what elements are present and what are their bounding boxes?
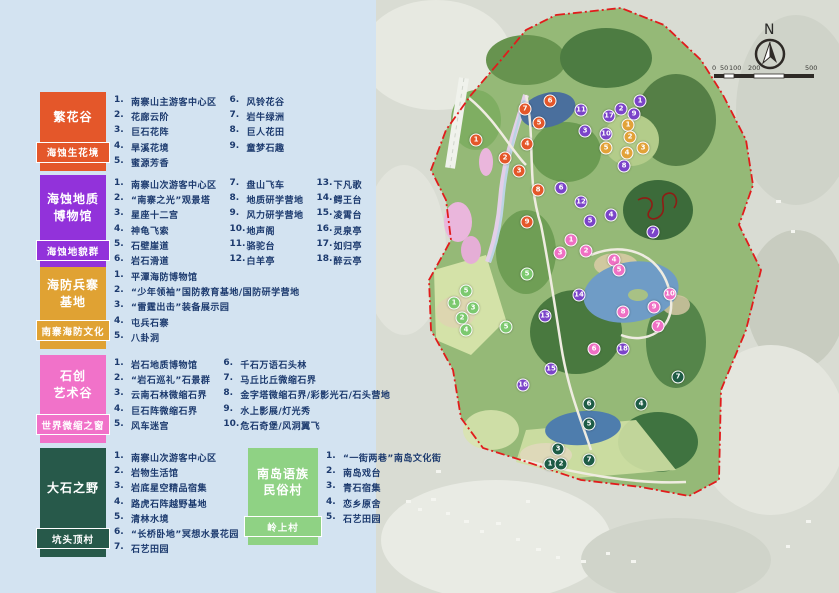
map-marker-stone-art-valley-1: 1 <box>565 234 578 247</box>
map-marker-geology-museum-3: 3 <box>579 125 592 138</box>
map-marker-folk-village-3: 3 <box>467 302 480 315</box>
legend-item: 1.岩石地质博物馆 <box>114 358 210 373</box>
map-marker-flower-valley-2: 2 <box>499 152 512 165</box>
legend-item: 16.灵泉亭 <box>317 224 363 239</box>
map-marker-stone-wilderness-3: 3 <box>552 443 565 456</box>
legend-item: 11.骆驼台 <box>230 239 304 254</box>
legend-item: 5.风车迷宫 <box>114 419 210 434</box>
legend-subtitle: 南寨海防文化 <box>36 320 110 341</box>
legend-item: 13.下凡歌 <box>317 178 363 193</box>
map-marker-geology-museum-10: 10 <box>600 128 613 141</box>
svg-text:0: 0 <box>712 64 716 72</box>
legend-item: 4.神龟飞索 <box>114 224 217 239</box>
map-marker-stone-wilderness-2: 2 <box>555 458 568 471</box>
map-marker-flower-valley-7: 7 <box>519 103 532 116</box>
map-marker-geology-museum-1: 1 <box>634 95 647 108</box>
map-marker-geology-museum-12: 12 <box>575 196 588 209</box>
map-marker-defense-base-2: 2 <box>624 131 637 144</box>
legend-item: 8.巨人花田 <box>230 125 285 140</box>
map-marker-defense-base-3: 3 <box>637 142 650 155</box>
legend-item: 7.石艺田园 <box>114 542 239 557</box>
legend-item: 2.花廊云阶 <box>114 110 217 125</box>
legend-title: 南岛语族 民俗村 <box>248 448 318 516</box>
map-marker-stone-art-valley-6: 6 <box>588 343 601 356</box>
legend-item: 6.“长桥卧地”冥想水景花园 <box>114 527 239 542</box>
legend-item: 2.“岩石巡礼”石景群 <box>114 373 210 388</box>
park-plan-poster: 繁花谷 海蚀生花境 1.南寨山主游客中心区2.花廊云阶3.巨石花阵4.旱溪花境5… <box>0 0 839 593</box>
svg-text:200: 200 <box>748 64 760 72</box>
legend-items: 1.平潭海防博物馆2.“少年领袖”国防教育基地/国防研学营地3.“雷霆出击”装备… <box>114 267 300 349</box>
legend-item: 2.岩物生活馆 <box>114 466 239 481</box>
legend-item: 3.青石宿集 <box>326 481 441 496</box>
svg-text:N: N <box>764 22 774 38</box>
map-marker-geology-museum-13: 13 <box>539 310 552 323</box>
legend-item: 4.路虎石阵越野基地 <box>114 497 239 512</box>
map-marker-folk-village-4: 4 <box>460 324 473 337</box>
legend-group-geology-museum: 海蚀地质 博物馆 海蚀地貌群 1.南寨山次游客中心区2.“南寨之光”观景塔3.星… <box>40 175 362 269</box>
legend-title: 石创 艺术谷 <box>40 355 106 414</box>
svg-text:500: 500 <box>805 64 817 72</box>
map-marker-geology-museum-6: 6 <box>555 182 568 195</box>
legend-item: 8.地质研学营地 <box>230 193 304 208</box>
map-marker-folk-village-5: 5 <box>521 268 534 281</box>
map-marker-flower-valley-6: 6 <box>544 95 557 108</box>
legend-item: 7.盘山飞车 <box>230 178 304 193</box>
legend-group-folk-village: 南岛语族 民俗村 岭上村 1.“一街两巷”南岛文化街2.南岛戏台3.青石宿集4.… <box>248 448 441 545</box>
map-marker-stone-art-valley-10: 10 <box>664 288 677 301</box>
legend-item: 6.千石万语石头林 <box>223 358 390 373</box>
map-marker-stone-wilderness-7: 7 <box>672 371 685 384</box>
legend-group-stone-art-valley: 石创 艺术谷 世界微缩之窗 1.岩石地质博物馆2.“岩石巡礼”石景群3.云南石林… <box>40 355 390 443</box>
map-marker-flower-valley-5: 5 <box>533 117 546 130</box>
legend-subtitle: 世界微缩之窗 <box>36 414 110 435</box>
map-marker-geology-museum-16: 16 <box>517 379 530 392</box>
map-marker-stone-art-valley-3: 3 <box>554 247 567 260</box>
legend-item: 3.巨石花阵 <box>114 125 217 140</box>
legend-color-box: 石创 艺术谷 世界微缩之窗 <box>40 355 106 443</box>
map-marker-geology-museum-7: 7 <box>647 226 660 239</box>
map-marker-flower-valley-3: 3 <box>513 165 526 178</box>
legend-item: 9.风力研学营地 <box>230 208 304 223</box>
legend-item: 4.恋乡原舍 <box>326 497 441 512</box>
legend-item: 15.凌霄台 <box>317 208 363 223</box>
map-marker-geology-museum-14: 14 <box>573 289 586 302</box>
legend-item: 5.八卦洞 <box>114 331 300 346</box>
legend-subtitle: 坑头顶村 <box>36 528 110 549</box>
legend-item: 2.南岛戏台 <box>326 466 441 481</box>
legend-color-box: 海蚀地质 博物馆 海蚀地貌群 <box>40 175 106 269</box>
legend-items: 1.南寨山次游客中心区2.“南寨之光”观景塔3.星座十二宫4.神龟飞索5.石壁崖… <box>114 175 362 269</box>
svg-text:100: 100 <box>729 64 741 72</box>
legend-items: 1.南寨山主游客中心区2.花廊云阶3.巨石花阵4.旱溪花境5.蜜源芳香6.风铃花… <box>114 92 285 171</box>
map-marker-folk-village-5: 5 <box>460 285 473 298</box>
legend-item: 5.石艺田园 <box>326 512 441 527</box>
map-marker-flower-valley-1: 1 <box>470 134 483 147</box>
legend-items: 1.“一街两巷”南岛文化街2.南岛戏台3.青石宿集4.恋乡原舍5.石艺田园 <box>326 448 441 545</box>
map-marker-geology-museum-18: 18 <box>617 343 630 356</box>
map-marker-stone-wilderness-7: 7 <box>583 454 596 467</box>
map-marker-stone-wilderness-4: 4 <box>635 398 648 411</box>
map-marker-folk-village-1: 1 <box>448 297 461 310</box>
legend-subtitle: 海蚀地貌群 <box>36 240 110 261</box>
map-marker-defense-base-4: 4 <box>621 147 634 160</box>
legend-color-box: 海防兵寨 基地 南寨海防文化 <box>40 267 106 349</box>
map-marker-geology-museum-8: 8 <box>618 160 631 173</box>
map-marker-geology-museum-4: 4 <box>605 209 618 222</box>
legend-item: 17.如归亭 <box>317 239 363 254</box>
legend-item: 2.“少年领袖”国防教育基地/国防研学营地 <box>114 285 300 300</box>
map-marker-flower-valley-4: 4 <box>521 138 534 151</box>
legend-subtitle: 岭上村 <box>244 516 322 537</box>
legend-items: 1.岩石地质博物馆2.“岩石巡礼”石景群3.云南石林微缩石界4.巨石阵微缩石界5… <box>114 355 390 443</box>
map-marker-flower-valley-8: 8 <box>532 184 545 197</box>
legend-items: 1.南寨山次游客中心区2.岩物生活馆3.岩底星空精品宿集4.路虎石阵越野基地5.… <box>114 448 239 557</box>
legend-item: 7.岩牛绿洲 <box>230 110 285 125</box>
legend-item: 14.鳄王台 <box>317 193 363 208</box>
legend-subtitle: 海蚀生花境 <box>36 142 110 163</box>
legend-color-box: 大石之野 坑头顶村 <box>40 448 106 557</box>
map-illustration: N 0 50 100 200 500 <box>376 0 839 593</box>
park-map: N 0 50 100 200 500 123456789123456789101… <box>376 0 839 593</box>
legend-title: 繁花谷 <box>40 92 106 142</box>
legend-color-box: 繁花谷 海蚀生花境 <box>40 92 106 171</box>
legend-item: 3.“雷霆出击”装备展示园 <box>114 300 300 315</box>
legend-item: 1.“一街两巷”南岛文化街 <box>326 451 441 466</box>
legend-group-defense-base: 海防兵寨 基地 南寨海防文化 1.平潭海防博物馆2.“少年领袖”国防教育基地/国… <box>40 267 300 349</box>
map-marker-geology-museum-2: 2 <box>615 103 628 116</box>
map-marker-folk-village-5: 5 <box>500 321 513 334</box>
legend-group-stone-wilderness: 大石之野 坑头顶村 1.南寨山次游客中心区2.岩物生活馆3.岩底星空精品宿集4.… <box>40 448 239 557</box>
legend-item: 5.清林水境 <box>114 512 239 527</box>
map-marker-geology-museum-17: 17 <box>603 110 616 123</box>
map-marker-stone-art-valley-9: 9 <box>648 301 661 314</box>
legend-item: 3.岩底星空精品宿集 <box>114 481 239 496</box>
legend-item: 8.金字塔微缩石界/彩影光石/石头营地 <box>223 388 390 403</box>
map-marker-geology-museum-11: 11 <box>575 104 588 117</box>
map-marker-defense-base-1: 1 <box>622 119 635 132</box>
map-marker-stone-art-valley-7: 7 <box>652 320 665 333</box>
legend-item: 1.南寨山次游客中心区 <box>114 451 239 466</box>
legend-item: 4.旱溪花境 <box>114 141 217 156</box>
map-marker-stone-wilderness-6: 6 <box>583 398 596 411</box>
map-marker-geology-museum-5: 5 <box>584 215 597 228</box>
legend-item: 1.南寨山次游客中心区 <box>114 178 217 193</box>
legend-title: 大石之野 <box>40 448 106 528</box>
legend-item: 3.云南石林微缩石界 <box>114 388 210 403</box>
map-marker-stone-art-valley-5: 5 <box>613 264 626 277</box>
legend-item: 2.“南寨之光”观景塔 <box>114 193 217 208</box>
legend-item: 5.石壁崖道 <box>114 239 217 254</box>
legend-item: 9.水上影展/灯光秀 <box>223 404 390 419</box>
legend-item: 3.星座十二宫 <box>114 208 217 223</box>
legend-color-box: 南岛语族 民俗村 岭上村 <box>248 448 318 545</box>
map-marker-geology-museum-15: 15 <box>545 363 558 376</box>
legend-item: 1.平潭海防博物馆 <box>114 270 300 285</box>
legend-item: 10.地声阁 <box>230 224 304 239</box>
legend-item: 10.危石奇堡/风洞翼飞 <box>223 419 390 434</box>
legend-item: 18.醉云亭 <box>317 254 363 269</box>
svg-text:50: 50 <box>720 64 728 72</box>
map-marker-stone-art-valley-8: 8 <box>617 306 630 319</box>
map-marker-stone-art-valley-2: 2 <box>580 245 593 258</box>
legend-group-flower-valley: 繁花谷 海蚀生花境 1.南寨山主游客中心区2.花廊云阶3.巨石花阵4.旱溪花境5… <box>40 92 285 171</box>
map-marker-stone-wilderness-5: 5 <box>583 418 596 431</box>
legend-item: 6.风铃花谷 <box>230 95 285 110</box>
map-marker-defense-base-5: 5 <box>600 142 613 155</box>
legend-title: 海防兵寨 基地 <box>40 267 106 320</box>
legend-item: 4.屯兵石寨 <box>114 316 300 331</box>
map-marker-flower-valley-9: 9 <box>521 216 534 229</box>
legend-item: 4.巨石阵微缩石界 <box>114 404 210 419</box>
legend-item: 9.童梦石趣 <box>230 141 285 156</box>
legend-title: 海蚀地质 博物馆 <box>40 175 106 240</box>
legend-item: 7.马丘比丘微缩石界 <box>223 373 390 388</box>
legend-item: 1.南寨山主游客中心区 <box>114 95 217 110</box>
legend-item: 5.蜜源芳香 <box>114 156 217 171</box>
